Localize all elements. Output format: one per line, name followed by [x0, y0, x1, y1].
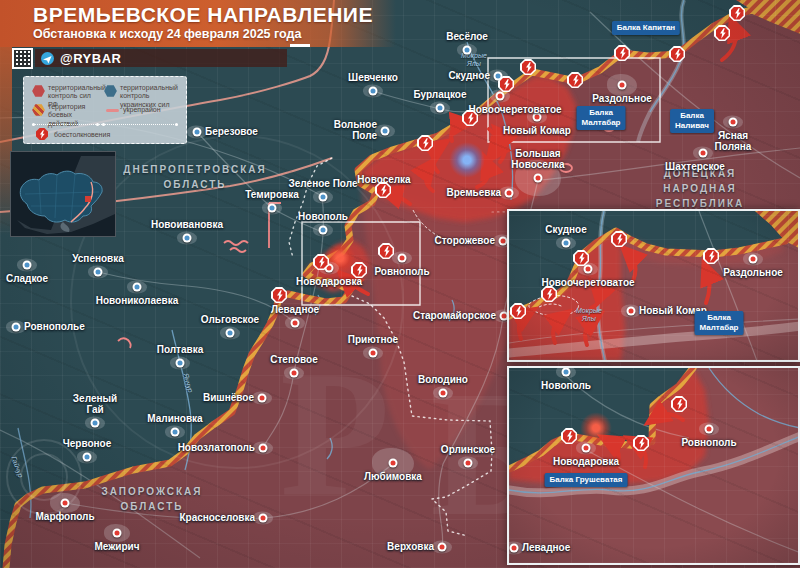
legend-item-label: боестолкновения: [54, 131, 154, 139]
town-dot: [699, 149, 708, 158]
telegram-icon: [41, 52, 54, 65]
map-shape-fort: [230, 248, 246, 252]
town-label: Новополь: [541, 380, 591, 391]
clash-icon: [498, 76, 514, 92]
clash-icon: [510, 303, 526, 319]
clash-icon: [561, 428, 577, 444]
town-dot: [12, 323, 21, 332]
town-dot: [562, 239, 571, 248]
town-label: Темировка: [245, 189, 299, 200]
town-label: Успеновка: [72, 253, 124, 264]
town-dot: [496, 92, 505, 101]
clash-icon: [417, 135, 433, 151]
town-dot: [389, 459, 398, 468]
clash-icon: [462, 110, 478, 126]
town-dot: [627, 307, 636, 316]
town-label: Весёлое: [446, 31, 488, 42]
town-label: Межирич: [94, 541, 139, 552]
clash-icon: [351, 262, 367, 278]
clash-icon: [313, 254, 329, 270]
town-label: Бурлацкое: [414, 89, 467, 100]
town-dot: [705, 425, 714, 434]
region-label: ЗАПОРОЖСКАЯ ОБЛАСТЬ: [101, 484, 202, 514]
qr-code: [12, 48, 33, 69]
town-label: Большая Новоселка: [511, 148, 564, 170]
town-dot: [193, 128, 202, 137]
town-dot: [582, 444, 591, 453]
clash-icon: [567, 72, 583, 88]
town-label: Новодаровка: [553, 456, 619, 467]
town-label: Сладкое: [6, 273, 48, 284]
town-label: Малиновка: [147, 413, 202, 424]
town-label: Новониколаевка: [96, 295, 179, 306]
town-label: Ясная Поляна: [715, 130, 752, 152]
town-label: Новополь: [298, 211, 348, 222]
legend-clash-icon: [36, 128, 48, 140]
town-dot: [319, 226, 328, 235]
town-dot: [439, 389, 448, 398]
town-label: Сторожевое: [435, 235, 495, 246]
town-label: Новоочеретоватое: [468, 104, 561, 115]
town-label: Любимовка: [364, 471, 422, 482]
river-label: Мокрые Ялы: [461, 52, 487, 67]
town-label: Шевченко: [348, 72, 398, 83]
town-dot: [183, 234, 192, 243]
town-dot: [133, 283, 142, 292]
town-label: Скудное: [448, 70, 490, 81]
clash-icon: [541, 286, 557, 302]
town-dot: [113, 529, 122, 538]
town-label: Червоное: [63, 438, 112, 449]
inset-zoom-vremyevka: СкудноеНовоочеретоватоеНовый КомарРаздол…: [507, 209, 800, 362]
legend-rf-swatch: [32, 85, 45, 97]
town-label: Левадное: [522, 542, 570, 553]
clash-icon: [703, 248, 719, 264]
advance-arrow: [706, 271, 710, 303]
town-dot: [291, 319, 300, 328]
town-dot: [749, 255, 758, 264]
town-label: Левадное: [271, 304, 319, 315]
minimap-location-marker: [85, 196, 91, 202]
map-legend: территориальный контроль сил РФ территор…: [23, 76, 187, 144]
balka-label: Балка Капитан: [612, 21, 680, 35]
scale-dash: [290, 44, 310, 47]
ukraine-minimap: [10, 151, 116, 237]
town-label: Степовое: [270, 354, 318, 365]
clash-icon: [671, 396, 687, 412]
town-dot: [463, 46, 472, 55]
town-label: Володино: [418, 374, 468, 385]
town-dot: [534, 174, 543, 183]
town-dot: [398, 254, 407, 263]
town-dot: [369, 87, 378, 96]
legend-separator: [32, 123, 178, 126]
town-label: Полтавка: [157, 344, 204, 355]
clash-icon: [669, 46, 685, 62]
town-dot: [91, 419, 100, 428]
legend-battle-swatch: [32, 104, 45, 116]
town-label: Вишнёвое: [203, 392, 254, 403]
town-label: Ровнополь: [374, 266, 429, 277]
clash-icon: [633, 435, 649, 451]
town-label: Орлинское: [441, 444, 495, 455]
clash-icon: [614, 45, 630, 61]
town-dot: [369, 349, 378, 358]
clash-icon: [378, 243, 394, 259]
map-shape-dotted: [289, 158, 332, 258]
region-label: ДОНЕЦКАЯ НАРОДНАЯ РЕСПУБЛИКА: [656, 166, 744, 211]
town-dot: [258, 394, 267, 403]
town-label: Красноселовка: [179, 512, 255, 523]
balka-label: Балка Малтабар: [577, 106, 626, 130]
town-label: Приютное: [348, 334, 398, 345]
clash-icon: [573, 250, 589, 266]
town-dot: [505, 189, 514, 198]
town-dot: [226, 329, 235, 338]
town-label: Шахтерское: [665, 161, 725, 172]
town-label: Ровнополье: [24, 321, 85, 332]
town-dot: [259, 514, 268, 523]
balka-label: Балка Грушеватая: [545, 473, 628, 487]
town-label: Марфополь: [35, 511, 94, 522]
town-label: Новый Комар: [503, 125, 571, 136]
town-dot: [259, 444, 268, 453]
town-dot: [319, 193, 328, 202]
clash-icon: [520, 59, 536, 75]
page-subtitle: Обстановка к исходу 24 февраля 2025 года: [0, 26, 396, 42]
inset-zoom-novodarovka: НовопольРовнопольНоводаровкаЛевадноеБалк…: [507, 366, 800, 565]
town-dot: [438, 543, 447, 552]
town-label: Раздольное: [592, 93, 652, 104]
legend-fort-swatch: [106, 109, 119, 112]
town-dot: [171, 428, 180, 437]
town-label: Ровнополь: [681, 437, 736, 448]
town-dot: [618, 81, 627, 90]
town-label: Березовое: [205, 126, 258, 137]
town-dot: [562, 368, 571, 377]
clash-icon: [714, 25, 730, 41]
town-dot: [290, 369, 299, 378]
town-dot: [61, 499, 70, 508]
map-shape-river: [709, 368, 800, 428]
town-dot: [381, 127, 390, 136]
town-dot: [83, 453, 92, 462]
balka-label: Балка Наливач: [670, 109, 714, 133]
town-label: Ольговское: [201, 314, 259, 325]
map-shape-fort: [118, 338, 131, 348]
town-label: Зеленое Поле: [289, 178, 358, 189]
town-label: Раздольное: [723, 267, 783, 278]
town-label: Верховка: [387, 541, 434, 552]
region-label: ДНЕПРОПЕТРОВСКАЯ ОБЛАСТЬ: [123, 162, 266, 192]
town-label: Скудное: [545, 224, 587, 235]
town-label: Вольное Поле: [334, 119, 377, 141]
town-label: Новозлатополь: [178, 442, 255, 453]
map-shape-fort: [224, 241, 248, 245]
town-dot: [729, 118, 738, 127]
channel-handle: @RYBAR: [60, 51, 121, 66]
ukraine-minimap-graphic: [11, 152, 115, 236]
town-label: Времьевка: [446, 187, 501, 198]
clash-icon: [271, 287, 287, 303]
town-label: Зеленый Гай: [73, 393, 117, 415]
title-banner: ВРЕМЬЕВСКОЕ НАПРАВЛЕНИЕ Обстановка к исх…: [0, 0, 396, 47]
legend-item-label: укрепрайон: [123, 106, 181, 114]
clash-icon: [375, 182, 391, 198]
town-dot: [176, 359, 185, 368]
map-canvas: ШевченкоБурлацкоеВесёлоеСкудноеВольное П…: [0, 0, 800, 568]
town-dot: [464, 459, 473, 468]
town-dot: [510, 544, 519, 553]
town-label: Новоивановка: [151, 219, 223, 230]
river-label: Мокрые Ялы: [576, 307, 602, 322]
balka-label: Балка Малтабар: [695, 311, 744, 335]
clash-icon: [729, 5, 745, 21]
clash-icon: [611, 231, 627, 247]
page-title: ВРЕМЬЕВСКОЕ НАПРАВЛЕНИЕ: [0, 0, 396, 26]
town-dot: [268, 204, 277, 213]
town-label: Старомайорское: [413, 310, 496, 321]
town-dot: [94, 268, 103, 277]
town-dot: [436, 104, 445, 113]
town-dot: [23, 261, 32, 270]
channel-bar: @RYBAR: [35, 49, 287, 67]
